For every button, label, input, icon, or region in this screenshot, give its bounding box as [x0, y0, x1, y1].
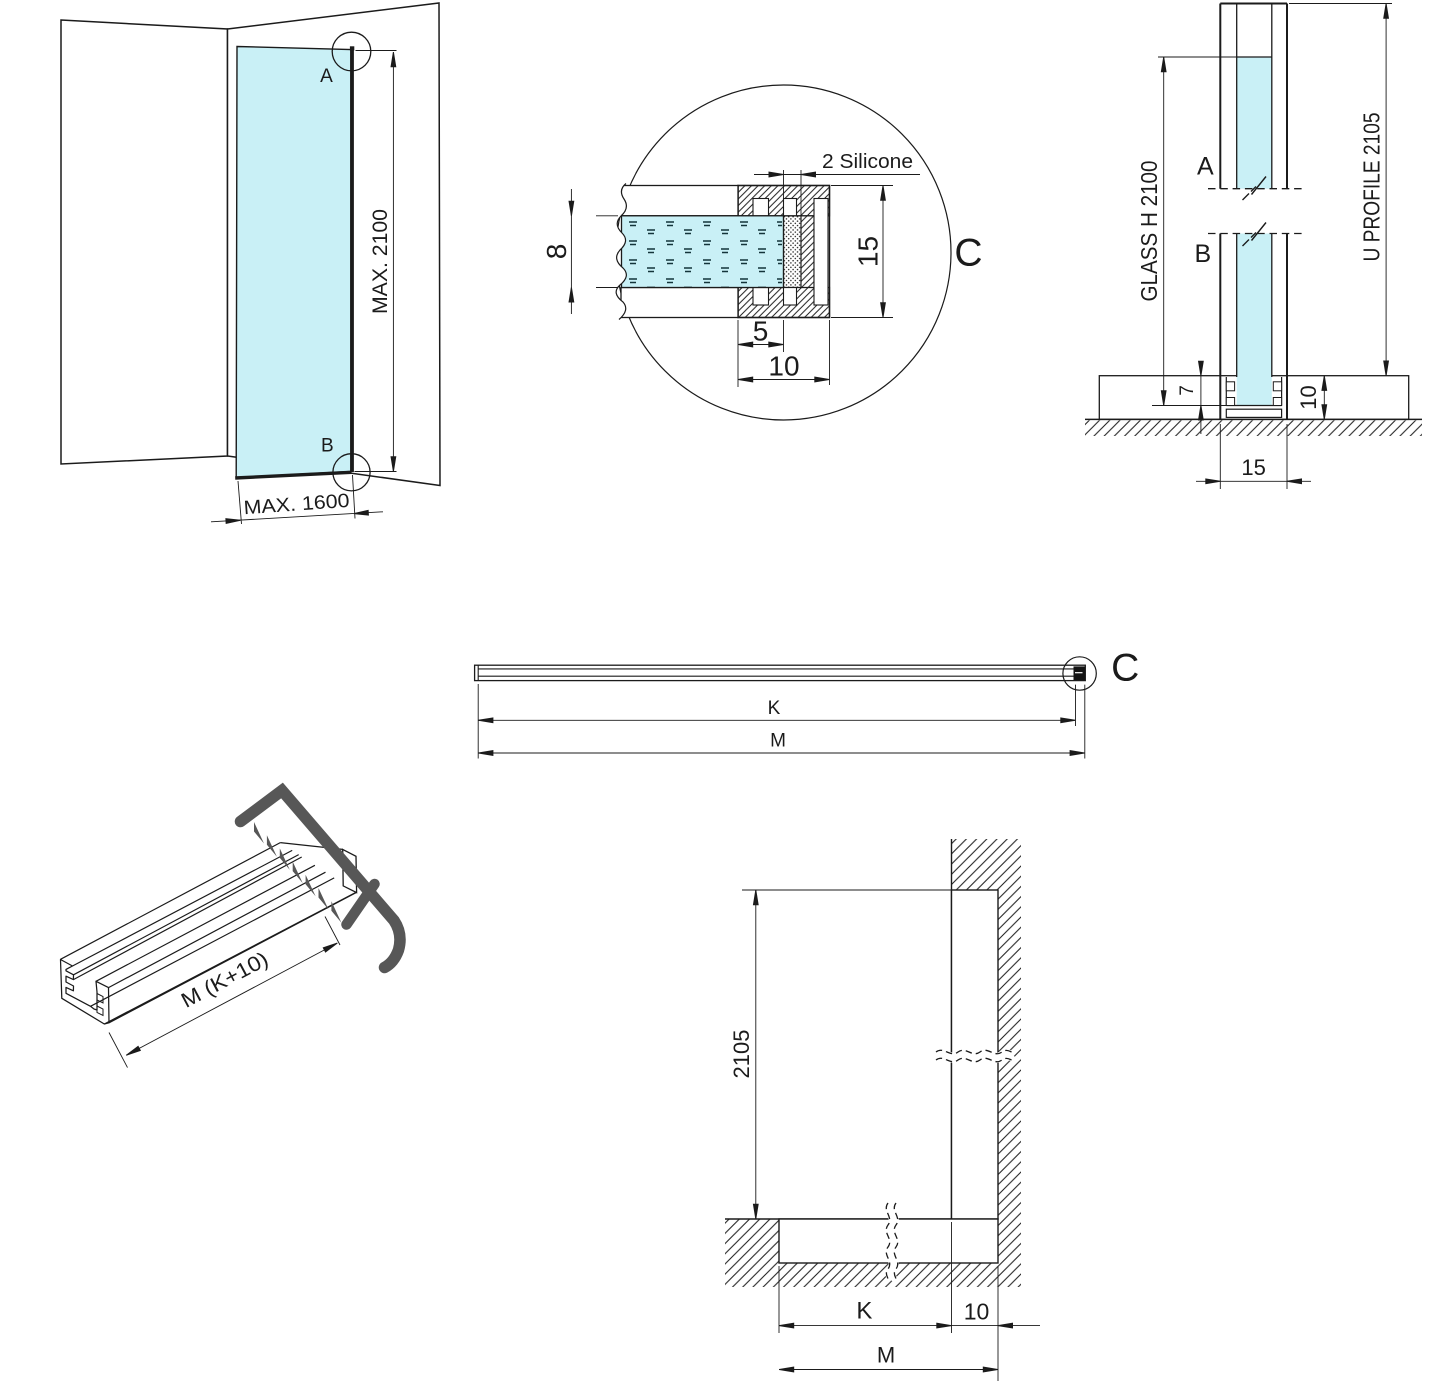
svg-text:K: K — [768, 698, 781, 719]
svg-text:2105: 2105 — [729, 1030, 754, 1079]
svg-text:A: A — [320, 66, 333, 87]
svg-text:7: 7 — [1177, 385, 1198, 396]
svg-text:U PROFILE 2105: U PROFILE 2105 — [1359, 113, 1385, 262]
svg-text:5: 5 — [753, 316, 769, 347]
svg-text:GLASS H 2100: GLASS H 2100 — [1136, 161, 1162, 302]
svg-text:C: C — [1111, 647, 1139, 690]
svg-text:2 Silicone: 2 Silicone — [822, 150, 913, 173]
svg-text:10: 10 — [964, 1299, 990, 1325]
svg-text:B: B — [321, 436, 334, 457]
svg-text:B: B — [1194, 240, 1211, 268]
svg-text:15: 15 — [1241, 455, 1265, 480]
svg-text:10: 10 — [768, 351, 799, 382]
svg-text:C: C — [954, 232, 982, 275]
svg-text:10: 10 — [1296, 385, 1321, 409]
svg-text:M: M — [877, 1343, 895, 1368]
svg-text:A: A — [1197, 153, 1214, 181]
svg-text:K: K — [856, 1298, 872, 1325]
svg-text:8: 8 — [541, 244, 572, 260]
svg-text:MAX. 2100: MAX. 2100 — [369, 209, 392, 314]
svg-text:15: 15 — [853, 236, 884, 267]
svg-text:M: M — [770, 731, 786, 752]
